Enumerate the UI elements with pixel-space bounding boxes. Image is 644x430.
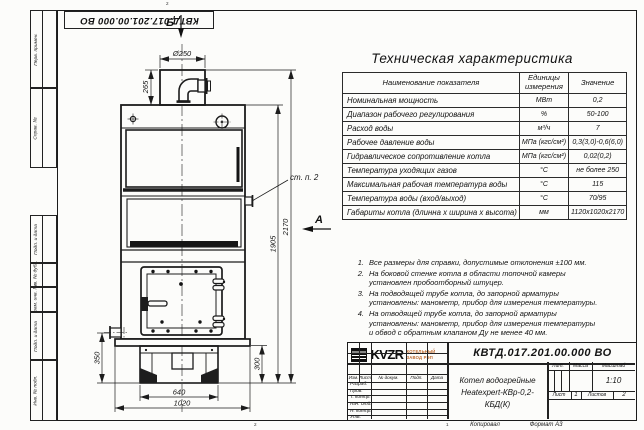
- margin-box-inv-podl: Инв. № подл.: [30, 360, 57, 421]
- note-item: 2.На боковой стенке котла в области топо…: [352, 269, 604, 288]
- view-b-arrow: Б: [166, 15, 184, 38]
- callout-st-p-2: ст. п. 2: [252, 173, 319, 201]
- spec-unit: °С: [519, 164, 568, 178]
- col-docum: № докум.: [371, 374, 406, 382]
- right-foot: [201, 368, 218, 383]
- drain-fitting: [104, 326, 128, 339]
- spec-param: Расход воды: [343, 122, 520, 136]
- title-block: КВТД.017.201.00.000 ВО Изм. Лист № докум…: [347, 342, 637, 421]
- spec-header-row: Наименование показателя Единицы измерени…: [343, 73, 627, 94]
- spec-table: Наименование показателя Единицы измерени…: [342, 72, 627, 220]
- note-text: Все размеры для справки, допустимые откл…: [369, 258, 601, 268]
- spec-unit: °С: [519, 178, 568, 192]
- spec-param: Рабочее давление воды: [343, 136, 520, 150]
- sampling-fitting: [245, 195, 253, 207]
- svg-text:1905: 1905: [269, 235, 278, 253]
- spec-row: Диапазон рабочего регулирования%50-100: [343, 108, 627, 122]
- spec-param: Номинальная мощность: [343, 94, 520, 108]
- spec-header-units: Единицы измерения: [519, 73, 568, 94]
- spec-row: Расход водым³/ч7: [343, 122, 627, 136]
- svg-text:300: 300: [253, 357, 262, 370]
- svg-text:265: 265: [141, 80, 150, 94]
- dim-1905: 1905: [246, 105, 283, 383]
- sig-razrab: Разраб.: [348, 382, 373, 389]
- margin-box-label-col: Инв. № подл.: [31, 361, 43, 420]
- svg-text:350: 350: [93, 351, 102, 364]
- title-block-doc-number: КВТД.017.201.00.000 ВО: [447, 343, 638, 363]
- boiler-front-view: Б: [57, 10, 347, 421]
- margin-box-podp-data-1: Подп. и дата: [30, 215, 57, 263]
- note-item: 4.На отводящей трубе котла, до запорной …: [352, 309, 604, 338]
- scale-value: 1:10: [592, 370, 635, 391]
- col-izm: Изм.: [348, 374, 359, 382]
- col-podp: Подп.: [406, 374, 427, 382]
- grid-line: [547, 399, 635, 400]
- svg-text:Ø250: Ø250: [172, 49, 192, 58]
- spec-row: Рабочее давление водыМПа (кгс/см²)0,3(3,…: [343, 136, 627, 150]
- spec-unit: МПа (кгс/см²): [519, 136, 568, 150]
- spec-value: не более 250: [569, 164, 627, 178]
- zone-mark-top: 2: [166, 1, 169, 6]
- margin-box-label-col: Перв. примен.: [31, 11, 43, 87]
- spec-row: Максимальная рабочая температура воды°С1…: [343, 178, 627, 192]
- sig-nachotd: Нач. отд.: [348, 402, 373, 409]
- note-text: На отводящей трубе котла, до запорной ар…: [369, 309, 601, 338]
- notes-list: 1.Все размеры для справки, допустимые от…: [352, 258, 604, 339]
- grid-line: [554, 370, 555, 391]
- margin-box-podp-data-2: Подп. и дата: [30, 312, 57, 360]
- spec-unit: мм: [519, 206, 568, 220]
- note-text: На боковой стенке котла в области топочн…: [369, 269, 601, 288]
- spec-unit: °С: [519, 192, 568, 206]
- margin-label: Подп. и дата: [34, 224, 39, 255]
- base-opening: [172, 353, 193, 369]
- spec-unit: МВт: [519, 94, 568, 108]
- scale-label: Масштаб: [592, 363, 635, 370]
- product-name-line1: Котел водогрейные: [459, 375, 535, 387]
- dim-d250: Ø250: [160, 49, 205, 68]
- sheets-value: 2: [613, 391, 635, 399]
- door-handle: [141, 297, 167, 311]
- sheet-label: Лист: [547, 391, 571, 399]
- margin-label: Инв. № подл.: [34, 375, 39, 405]
- sheet-value: 1: [571, 391, 581, 399]
- svg-text:640: 640: [173, 388, 186, 397]
- spec-row: Температура уходящих газов°Сне более 250: [343, 164, 627, 178]
- margin-label: Перв. примен.: [34, 33, 39, 66]
- margin-box-sprav-no: Справ. №: [30, 88, 57, 168]
- margin-box-vzam-inv: Взам. инв. №: [30, 287, 57, 312]
- spec-param: Температура уходящих газов: [343, 164, 520, 178]
- note-number: 1.: [352, 258, 364, 268]
- margin-box-perv-primen: Перв. примен.: [30, 10, 57, 88]
- col-list: Лист: [359, 374, 371, 382]
- dimensions: Ø250 265 350 300 640 1020: [93, 49, 297, 412]
- spec-row: Гидравлическое сопротивление котлаМПа (к…: [343, 150, 627, 164]
- spec-value: 0,3(3,0)-0,6(6,0): [569, 136, 627, 150]
- spec-value: 1120х1020х2170: [569, 206, 627, 220]
- dim-265: 265: [141, 70, 158, 105]
- grid-line: [348, 353, 447, 354]
- spec-value: 7: [569, 122, 627, 136]
- spec-table-title: Техническая характеристика: [342, 51, 602, 66]
- chimney: [160, 70, 211, 105]
- upper-panel-handle: [237, 147, 240, 182]
- top-fitting-small: [128, 114, 139, 125]
- sig-utv: Утв.: [348, 415, 373, 422]
- sheets-label: Листов: [581, 391, 613, 399]
- svg-text:ст. п. 2: ст. п. 2: [290, 173, 319, 182]
- spec-param: Габариты котла (длинна х ширина х высота…: [343, 206, 520, 220]
- sig-tkontr: Т. контр.: [348, 395, 373, 402]
- product-name-line2: Heatexpert-КВр-0,2- КБД(К): [448, 387, 547, 411]
- margin-label: Справ. №: [34, 117, 39, 139]
- base-pedestal: [115, 339, 250, 383]
- col-data: Дата: [427, 374, 447, 382]
- spec-header-name: Наименование показателя: [343, 73, 520, 94]
- spec-row: Температура воды (вход/выход)°С70/95: [343, 192, 627, 206]
- zone-mark-bottom-left: 2: [254, 422, 257, 427]
- spec-unit: %: [519, 108, 568, 122]
- spec-row: Номинальная мощностьМВт0,2: [343, 94, 627, 108]
- note-number: 2.: [352, 269, 364, 288]
- product-name: Котел водогрейные Heatexpert-КВр-0,2- КБ…: [448, 363, 547, 422]
- left-foot: [140, 368, 157, 383]
- svg-text:1020: 1020: [174, 399, 192, 408]
- lit-label: Лит.: [547, 363, 569, 370]
- note-item: 1.Все размеры для справки, допустимые от…: [352, 258, 604, 268]
- dim-300: 300: [251, 346, 267, 384]
- middle-panel: [127, 199, 241, 247]
- spec-param: Температура воды (вход/выход): [343, 192, 520, 206]
- margin-label: Подп. и дата: [34, 321, 39, 352]
- margin-label: Взам. инв. №: [34, 284, 39, 314]
- kvzr-logo-caption: КОТЕЛЬНЫЙ ЗАВОД РЭП: [406, 349, 435, 359]
- svg-text:Б: Б: [166, 17, 174, 29]
- furnace-door: [141, 267, 225, 335]
- spec-param: Максимальная рабочая температура воды: [343, 178, 520, 192]
- zone-mark-bottom-right: 1: [446, 422, 449, 427]
- kvzr-logo-word: KVZR: [370, 347, 403, 362]
- margin-box-label-col: Подп. и дата: [31, 313, 43, 359]
- mass-label: Масса: [569, 363, 592, 370]
- upper-door-panel: [126, 130, 242, 187]
- margin-box-label-col: Справ. №: [31, 89, 43, 167]
- spec-value: 0,02(0,2): [569, 150, 627, 164]
- view-a-arrow: А: [302, 214, 331, 232]
- note-number: 3.: [352, 289, 364, 308]
- note-text: На подводящей трубе котла, до запорной а…: [369, 289, 601, 308]
- spec-value: 115: [569, 178, 627, 192]
- margin-box-label-col: Взам. инв. №: [31, 288, 43, 311]
- drawing-sheet: { "sheet": { "doc_number_top": "КВТД.017…: [0, 0, 644, 430]
- door-hinges: [213, 279, 225, 327]
- svg-text:2170: 2170: [281, 218, 290, 237]
- spec-param: Гидравлическое сопротивление котла: [343, 150, 520, 164]
- margin-box-label-col: Подп. и дата: [31, 216, 43, 262]
- logo-caption-line2: ЗАВОД РЭП: [406, 355, 435, 360]
- note-number: 4.: [352, 309, 364, 338]
- format-label: Формат А3: [520, 422, 572, 428]
- spec-header-value: Значение: [569, 73, 627, 94]
- spec-param: Диапазон рабочего регулирования: [343, 108, 520, 122]
- copied-label: Копировал: [455, 422, 515, 428]
- svg-text:А: А: [314, 214, 323, 226]
- spec-unit: м³/ч: [519, 122, 568, 136]
- spec-row: Габариты котла (длинна х ширина х высота…: [343, 206, 627, 220]
- boiler-body: [104, 105, 253, 339]
- margin-box-label-col: Инв. № дубл.: [31, 264, 43, 286]
- note-item: 3.На подводящей трубе котла, до запорной…: [352, 289, 604, 308]
- spec-value: 50-100: [569, 108, 627, 122]
- spec-value: 0,2: [569, 94, 627, 108]
- dim-1020: 1020: [115, 347, 250, 412]
- spec-unit: МПа (кгс/см²): [519, 150, 568, 164]
- spec-value: 70/95: [569, 192, 627, 206]
- grid-line: [561, 370, 562, 391]
